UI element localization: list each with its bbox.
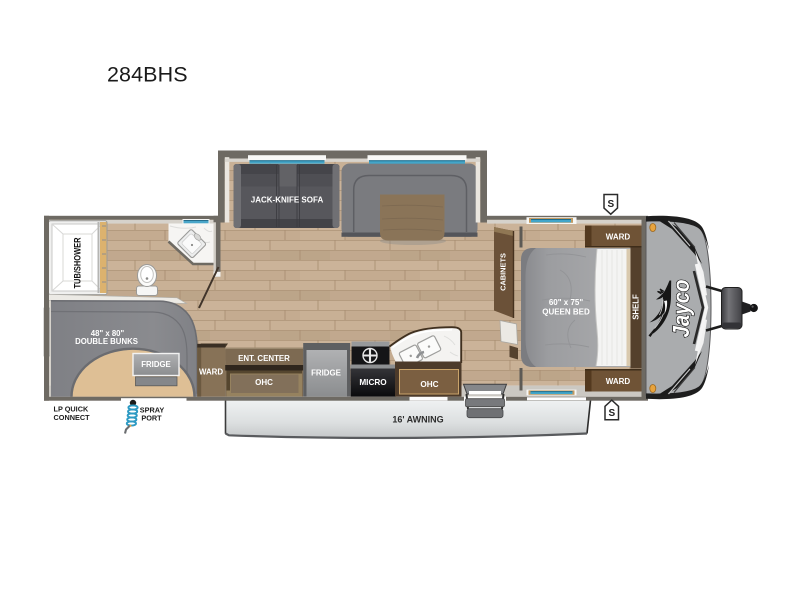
svg-text:60" x 75": 60" x 75": [549, 298, 583, 307]
svg-text:WARD: WARD: [606, 377, 631, 386]
svg-text:16' AWNING: 16' AWNING: [392, 415, 443, 425]
svg-text:TUB/SHOWER: TUB/SHOWER: [73, 237, 83, 288]
svg-text:CONNECT: CONNECT: [54, 413, 91, 422]
svg-text:ENT. CENTER: ENT. CENTER: [238, 354, 290, 363]
svg-text:JACK-KNIFE SOFA: JACK-KNIFE SOFA: [251, 196, 324, 205]
svg-text:FRIDGE: FRIDGE: [141, 360, 170, 369]
svg-text:Jayco: Jayco: [668, 280, 694, 338]
svg-text:CABINETS: CABINETS: [499, 253, 508, 291]
svg-text:S: S: [608, 408, 615, 419]
svg-text:QUEEN BED: QUEEN BED: [542, 308, 590, 317]
svg-text:284BHS: 284BHS: [107, 63, 188, 87]
svg-text:DOUBLE BUNKS: DOUBLE BUNKS: [75, 337, 138, 346]
svg-text:OHC: OHC: [255, 378, 273, 387]
svg-text:MICRO: MICRO: [359, 378, 387, 387]
svg-text:FRIDGE: FRIDGE: [311, 369, 341, 378]
svg-text:WARD: WARD: [606, 233, 631, 242]
svg-text:WARD: WARD: [199, 368, 223, 377]
svg-text:SHELF: SHELF: [632, 294, 641, 320]
svg-text:PORT: PORT: [141, 414, 162, 423]
svg-text:S: S: [607, 199, 614, 210]
svg-text:OHC: OHC: [420, 380, 438, 389]
